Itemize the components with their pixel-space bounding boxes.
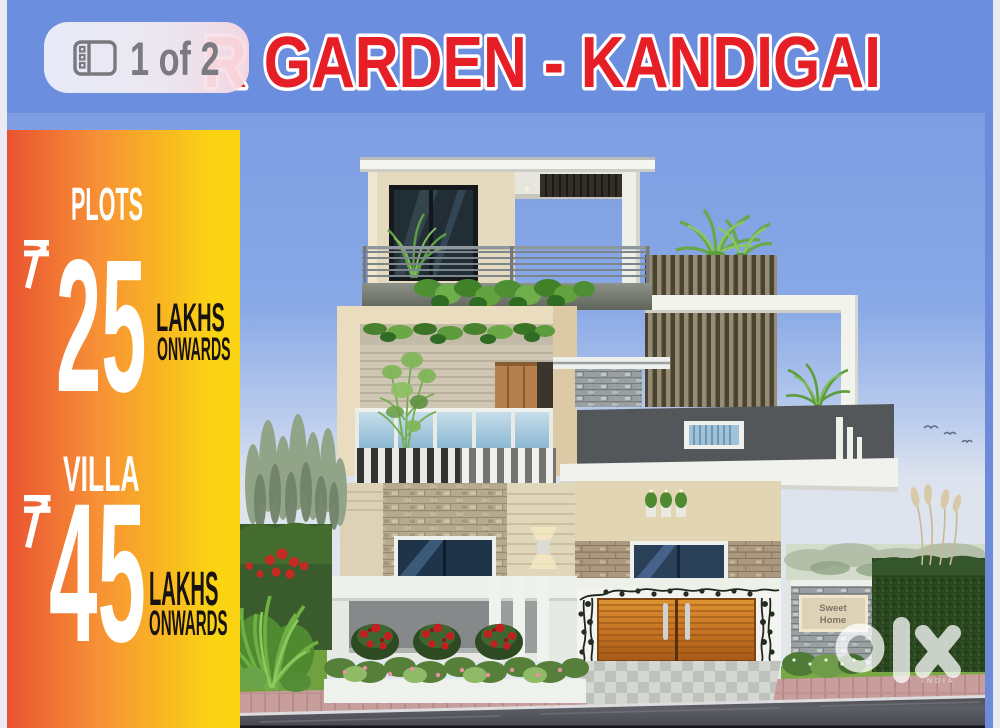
svg-text:45: 45 [49, 464, 146, 684]
svg-text:25: 25 [56, 220, 146, 432]
svg-text:ONWARDS: ONWARDS [149, 604, 228, 643]
svg-text:ONWARDS: ONWARDS [157, 333, 231, 368]
svg-text:1 of 2: 1 of 2 [130, 33, 220, 86]
